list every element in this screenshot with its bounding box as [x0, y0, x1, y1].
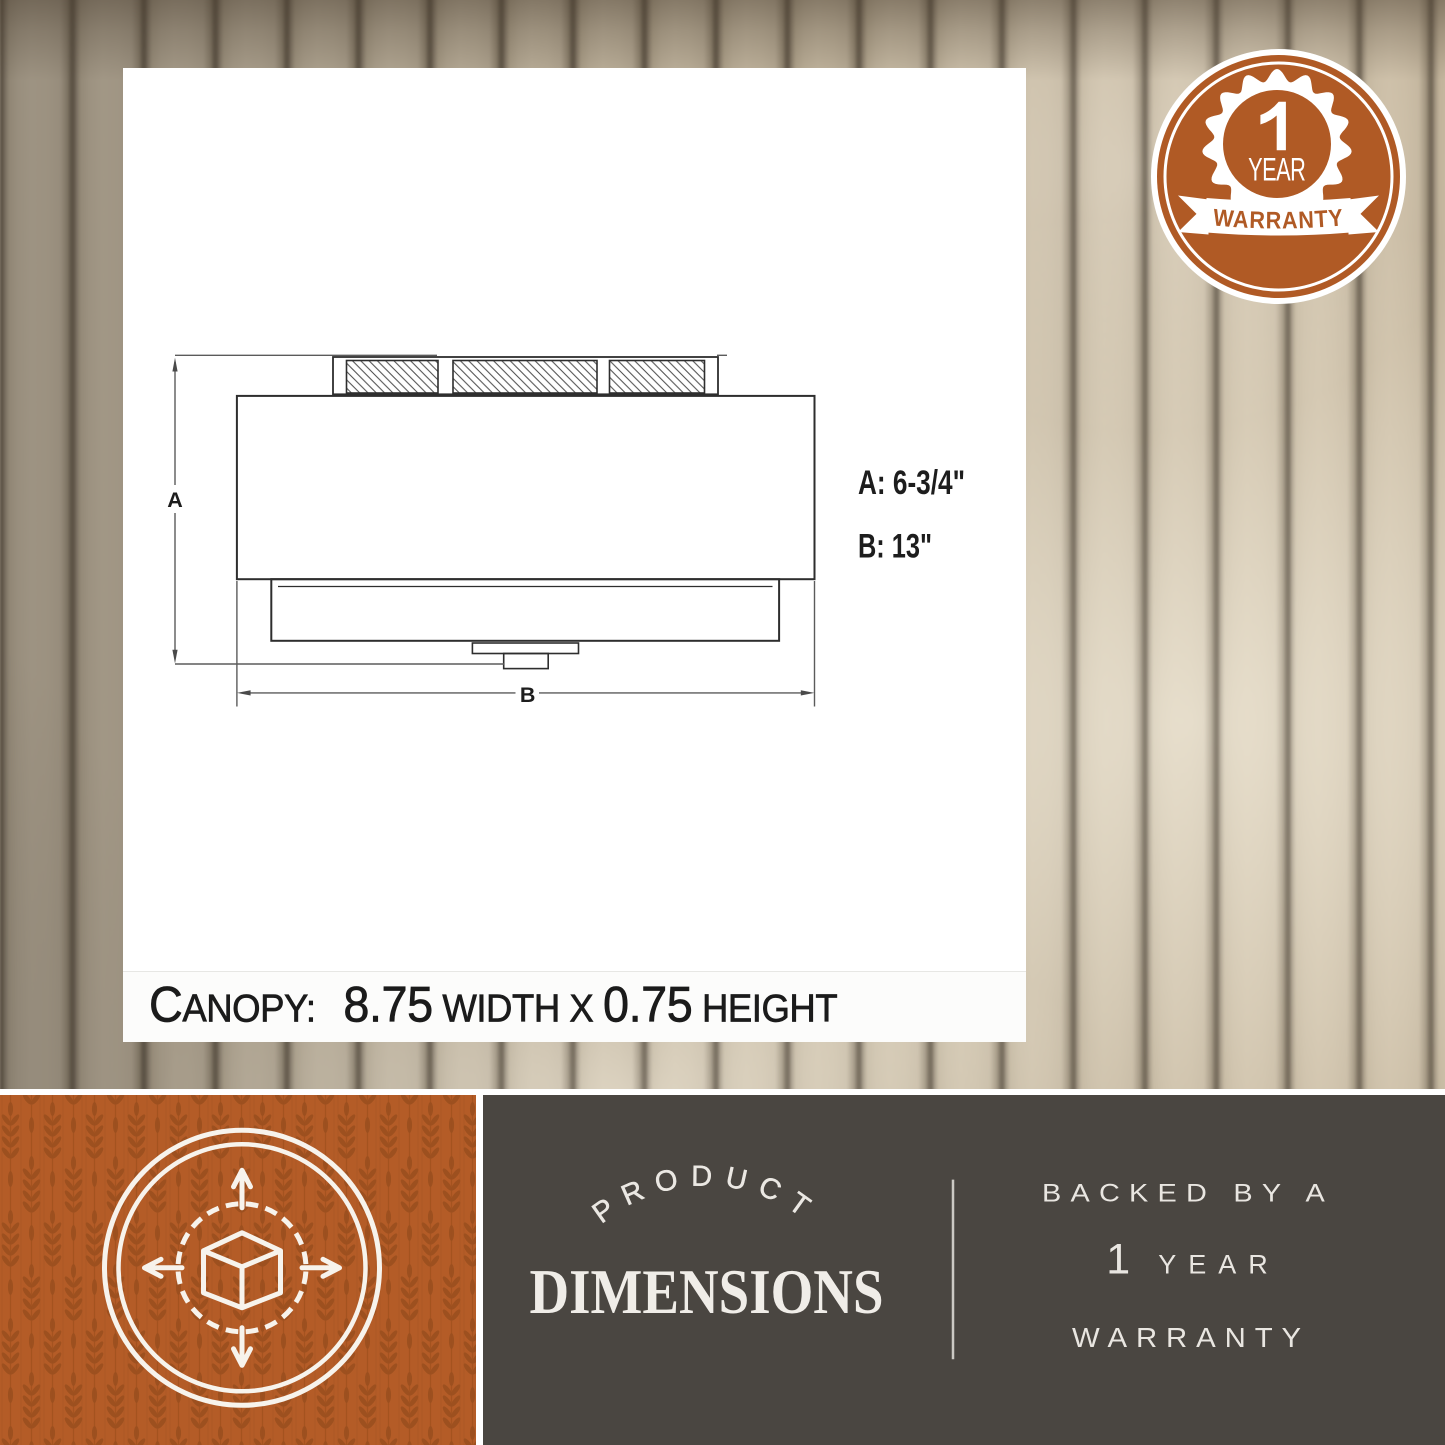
- svg-text:CANOPY: 8.75 WIDTH X 0.75 HEI: CANOPY: 8.75 WIDTH X 0.75 HEIGHT: [149, 977, 838, 1033]
- svg-text:A: 6-3/4": A: 6-3/4": [858, 464, 965, 502]
- svg-text:B: B: [520, 683, 536, 707]
- svg-text:WARRANTY: WARRANTY: [1072, 1322, 1310, 1353]
- svg-text:1YEAR: 1YEAR: [1106, 1236, 1279, 1284]
- svg-text:BACKED BY A: BACKED BY A: [1042, 1180, 1334, 1208]
- svg-text:B: 13": B: 13": [858, 528, 932, 566]
- svg-text:DIMENSIONS: DIMENSIONS: [530, 1257, 884, 1327]
- svg-text:YEAR: YEAR: [1248, 151, 1306, 187]
- svg-text:WARRANTY: WARRANTY: [1212, 204, 1345, 234]
- svg-text:PRODUCT: PRODUCT: [587, 1161, 826, 1230]
- svg-text:A: A: [167, 488, 183, 512]
